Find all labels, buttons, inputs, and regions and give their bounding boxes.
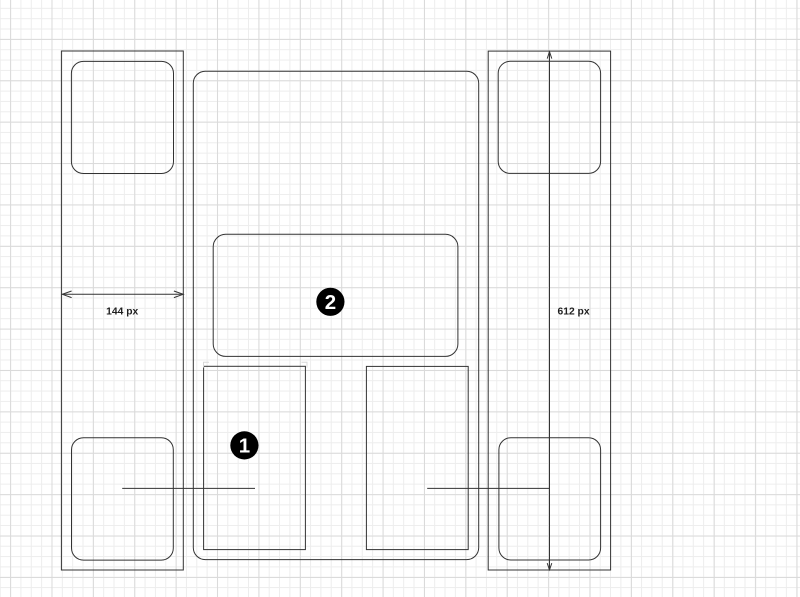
svg-text:612 px: 612 px: [558, 307, 590, 318]
svg-text:2: 2: [325, 291, 336, 314]
svg-text:144 px: 144 px: [106, 306, 138, 317]
svg-text:1: 1: [239, 435, 250, 458]
